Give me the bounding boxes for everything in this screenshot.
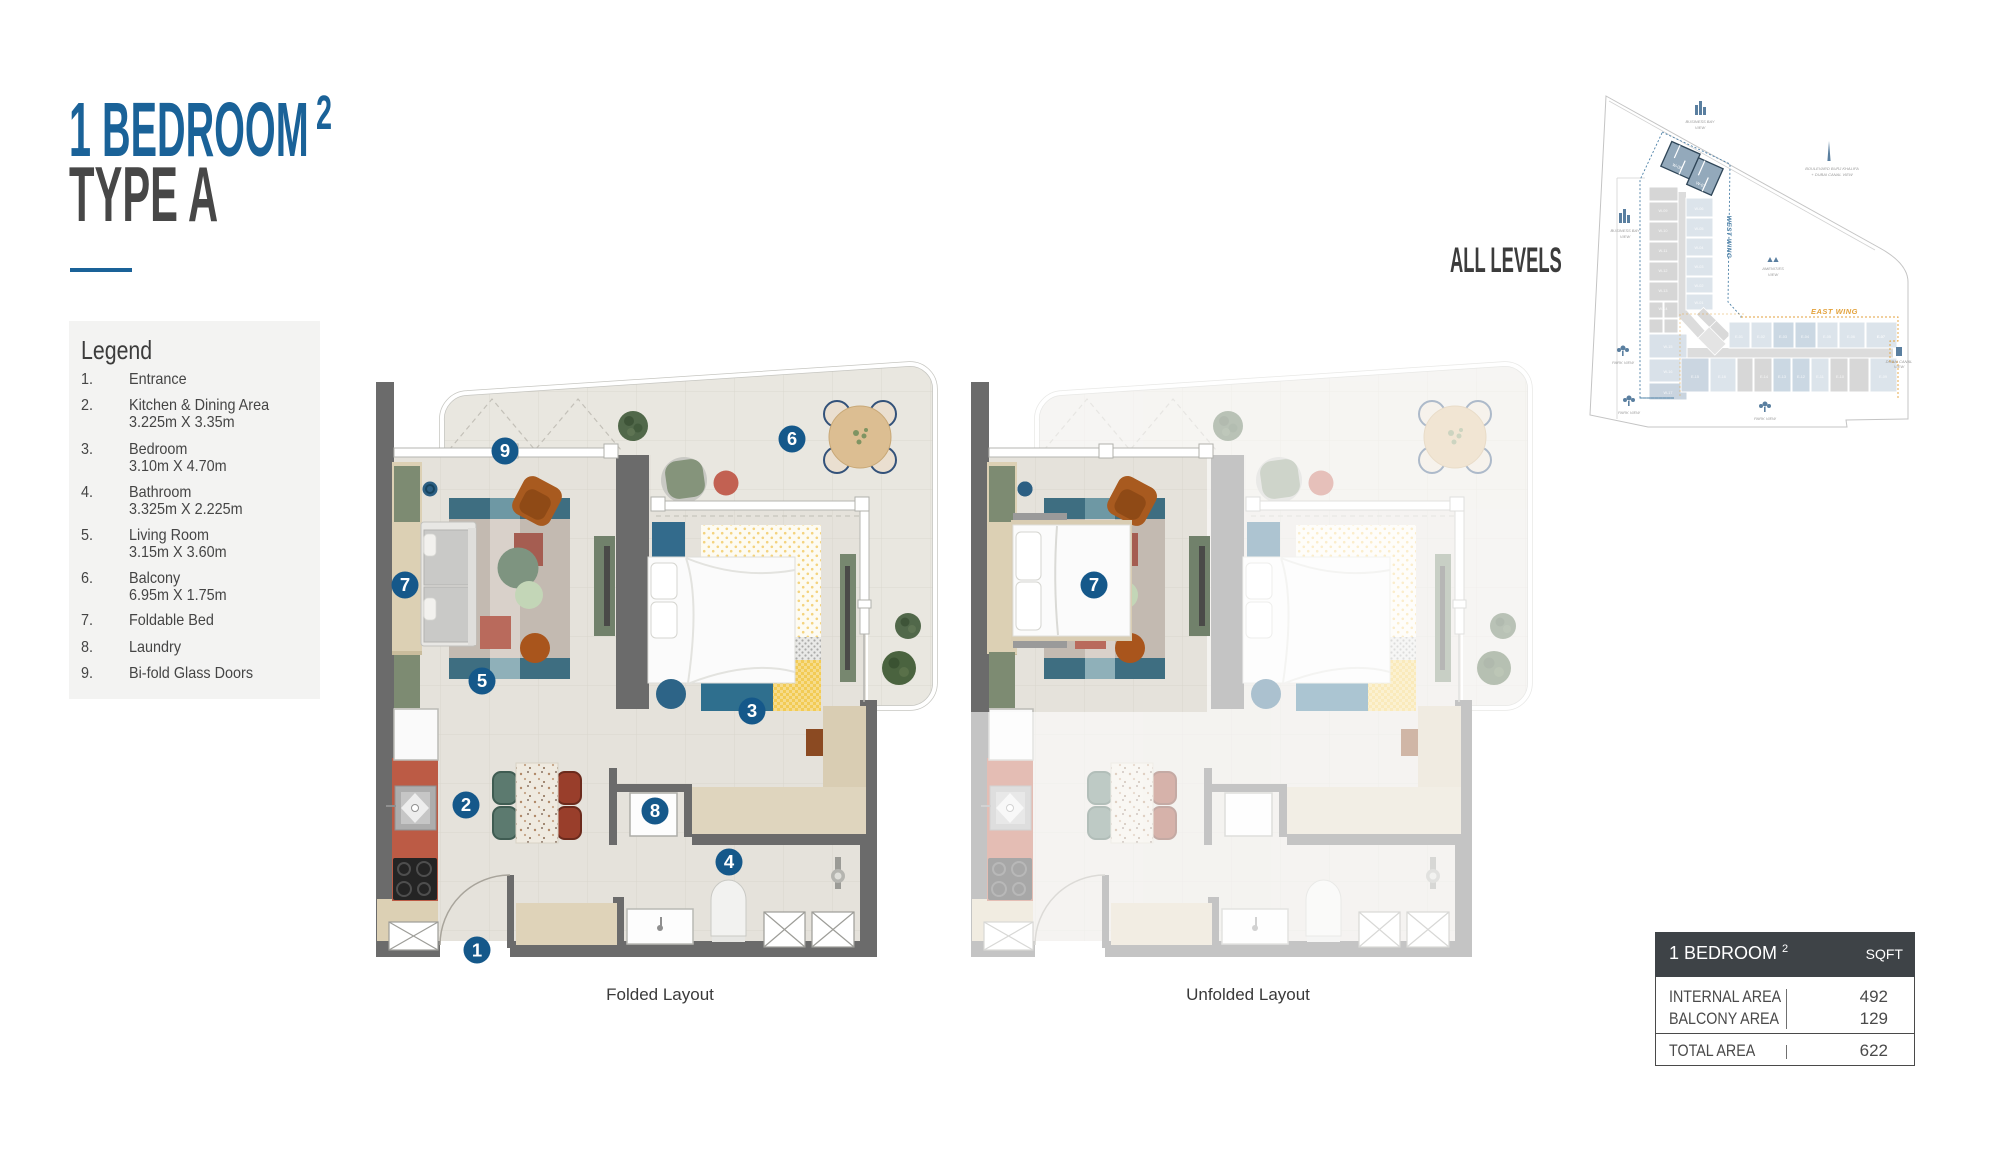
- svg-text:W-14: W-14: [1658, 307, 1667, 311]
- svg-text:E-03: E-03: [1779, 335, 1787, 339]
- svg-text:W-11: W-11: [1659, 249, 1668, 253]
- svg-text:E-09: E-09: [1879, 375, 1887, 379]
- svg-text:AMENITIES: AMENITIES: [1761, 266, 1784, 271]
- svg-text:BUSINESS BAY: BUSINESS BAY: [1685, 119, 1714, 124]
- svg-text:E-05: E-05: [1823, 335, 1831, 339]
- svg-text:6: 6: [787, 428, 797, 449]
- svg-text:W-12: W-12: [1658, 269, 1667, 273]
- svg-text:E-04: E-04: [1801, 335, 1809, 339]
- svg-text:VIEW: VIEW: [1620, 234, 1631, 239]
- svg-text:8: 8: [650, 800, 660, 821]
- svg-text:4: 4: [724, 851, 735, 872]
- svg-text:E-13: E-13: [1778, 375, 1786, 379]
- svg-text:E-06: E-06: [1847, 335, 1855, 339]
- svg-text:W-10: W-10: [1658, 229, 1667, 233]
- svg-text:E-14: E-14: [1760, 375, 1768, 379]
- svg-text:E-16: E-16: [1718, 375, 1726, 379]
- svg-text:W-04: W-04: [1694, 246, 1703, 250]
- svg-text:E-15: E-15: [1691, 375, 1699, 379]
- svg-text:E-07: E-07: [1877, 335, 1885, 339]
- svg-text:PARK VIEW: PARK VIEW: [1612, 360, 1635, 365]
- svg-text:9: 9: [500, 440, 510, 461]
- svg-text:PARK VIEW: PARK VIEW: [1618, 410, 1641, 415]
- svg-text:2: 2: [461, 794, 471, 815]
- svg-text:W-17: W-17: [1663, 391, 1672, 395]
- svg-text:1: 1: [472, 940, 482, 961]
- svg-text:PARK VIEW: PARK VIEW: [1754, 416, 1777, 421]
- svg-text:BUSINESS BAY: BUSINESS BAY: [1610, 228, 1639, 233]
- svg-text:5: 5: [477, 670, 487, 691]
- svg-text:W-13: W-13: [1658, 289, 1667, 293]
- svg-text:W-01: W-01: [1694, 301, 1703, 305]
- svg-text:W-09: W-09: [1658, 209, 1667, 213]
- svg-text:7: 7: [1089, 574, 1099, 595]
- svg-text:EAST WING: EAST WING: [1811, 307, 1858, 316]
- svg-text:E-11: E-11: [1816, 375, 1824, 379]
- svg-text:+ DUBAI CANAL VIEW: + DUBAI CANAL VIEW: [1811, 172, 1854, 177]
- svg-text:W-15: W-15: [1663, 345, 1672, 349]
- svg-text:BOULEVARD BURJ KHALIFA: BOULEVARD BURJ KHALIFA: [1805, 166, 1859, 171]
- svg-text:W-05: W-05: [1694, 227, 1703, 231]
- svg-text:VIEW: VIEW: [1894, 364, 1905, 369]
- svg-text:W-06: W-06: [1694, 207, 1703, 211]
- svg-text:W-03: W-03: [1694, 265, 1703, 269]
- svg-text:7: 7: [400, 574, 410, 595]
- svg-text:E-02: E-02: [1757, 335, 1765, 339]
- svg-text:3: 3: [747, 700, 757, 721]
- svg-text:WEST WING: WEST WING: [1725, 216, 1732, 259]
- svg-text:W-16: W-16: [1663, 370, 1672, 374]
- svg-text:VIEW: VIEW: [1695, 125, 1706, 130]
- svg-text:E-12: E-12: [1797, 375, 1805, 379]
- svg-text:E-10: E-10: [1836, 375, 1844, 379]
- svg-text:VIEW: VIEW: [1768, 272, 1779, 277]
- svg-text:W-02: W-02: [1694, 284, 1703, 288]
- svg-text:E-01: E-01: [1735, 335, 1743, 339]
